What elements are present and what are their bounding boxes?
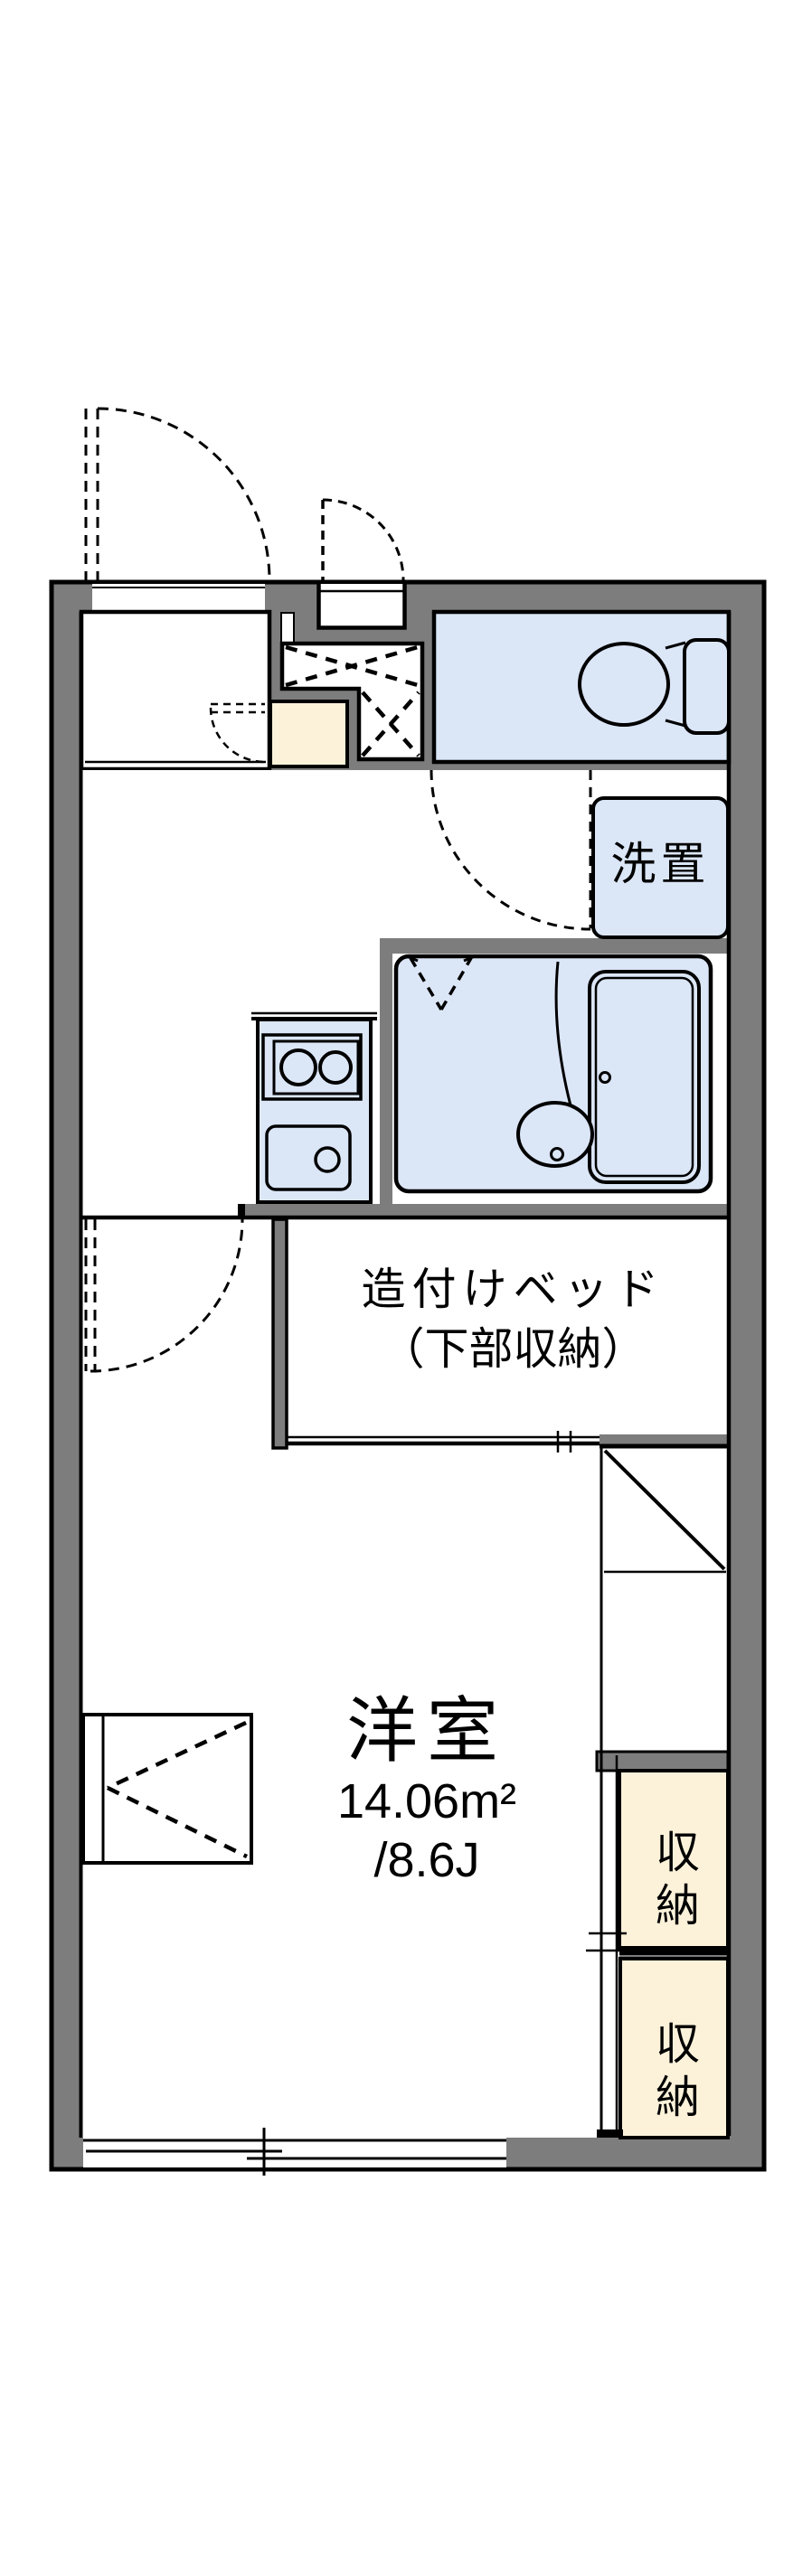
bath-basin	[518, 1103, 592, 1166]
porch-door-swing	[323, 500, 403, 580]
toilet-bowl	[580, 644, 668, 725]
entry-storage-room	[81, 612, 269, 769]
closet-lower-label: 収納	[650, 1992, 699, 2155]
main-room-label: 洋室	[264, 1690, 590, 1772]
bed-foot-wall	[600, 1434, 729, 1444]
built-in-bed-label: 造付けベッド	[298, 1264, 728, 1315]
floor-plan-page: 洗置 造付けベッド （下部収納） 洋室 14.06m² /8.6J 収納 収納	[0, 0, 812, 2576]
bed-under-storage-label: （下部収納）	[298, 1324, 728, 1375]
wall-notch	[281, 613, 294, 644]
entrance-door-swing	[98, 409, 269, 580]
shoe-cabinet	[270, 701, 347, 766]
laundry-label: 洗置	[593, 839, 728, 891]
bed-partition-wall	[273, 1219, 287, 1448]
main-room-left	[81, 1219, 273, 2138]
kitchen-unit	[258, 1020, 371, 1202]
closet-upper-label: 収納	[650, 1800, 699, 1963]
corridor	[81, 770, 380, 1014]
toilet-tank	[685, 640, 729, 733]
room-area-tatami: /8.6J	[264, 1832, 590, 1888]
room-area-m2: 14.06m²	[264, 1773, 590, 1829]
